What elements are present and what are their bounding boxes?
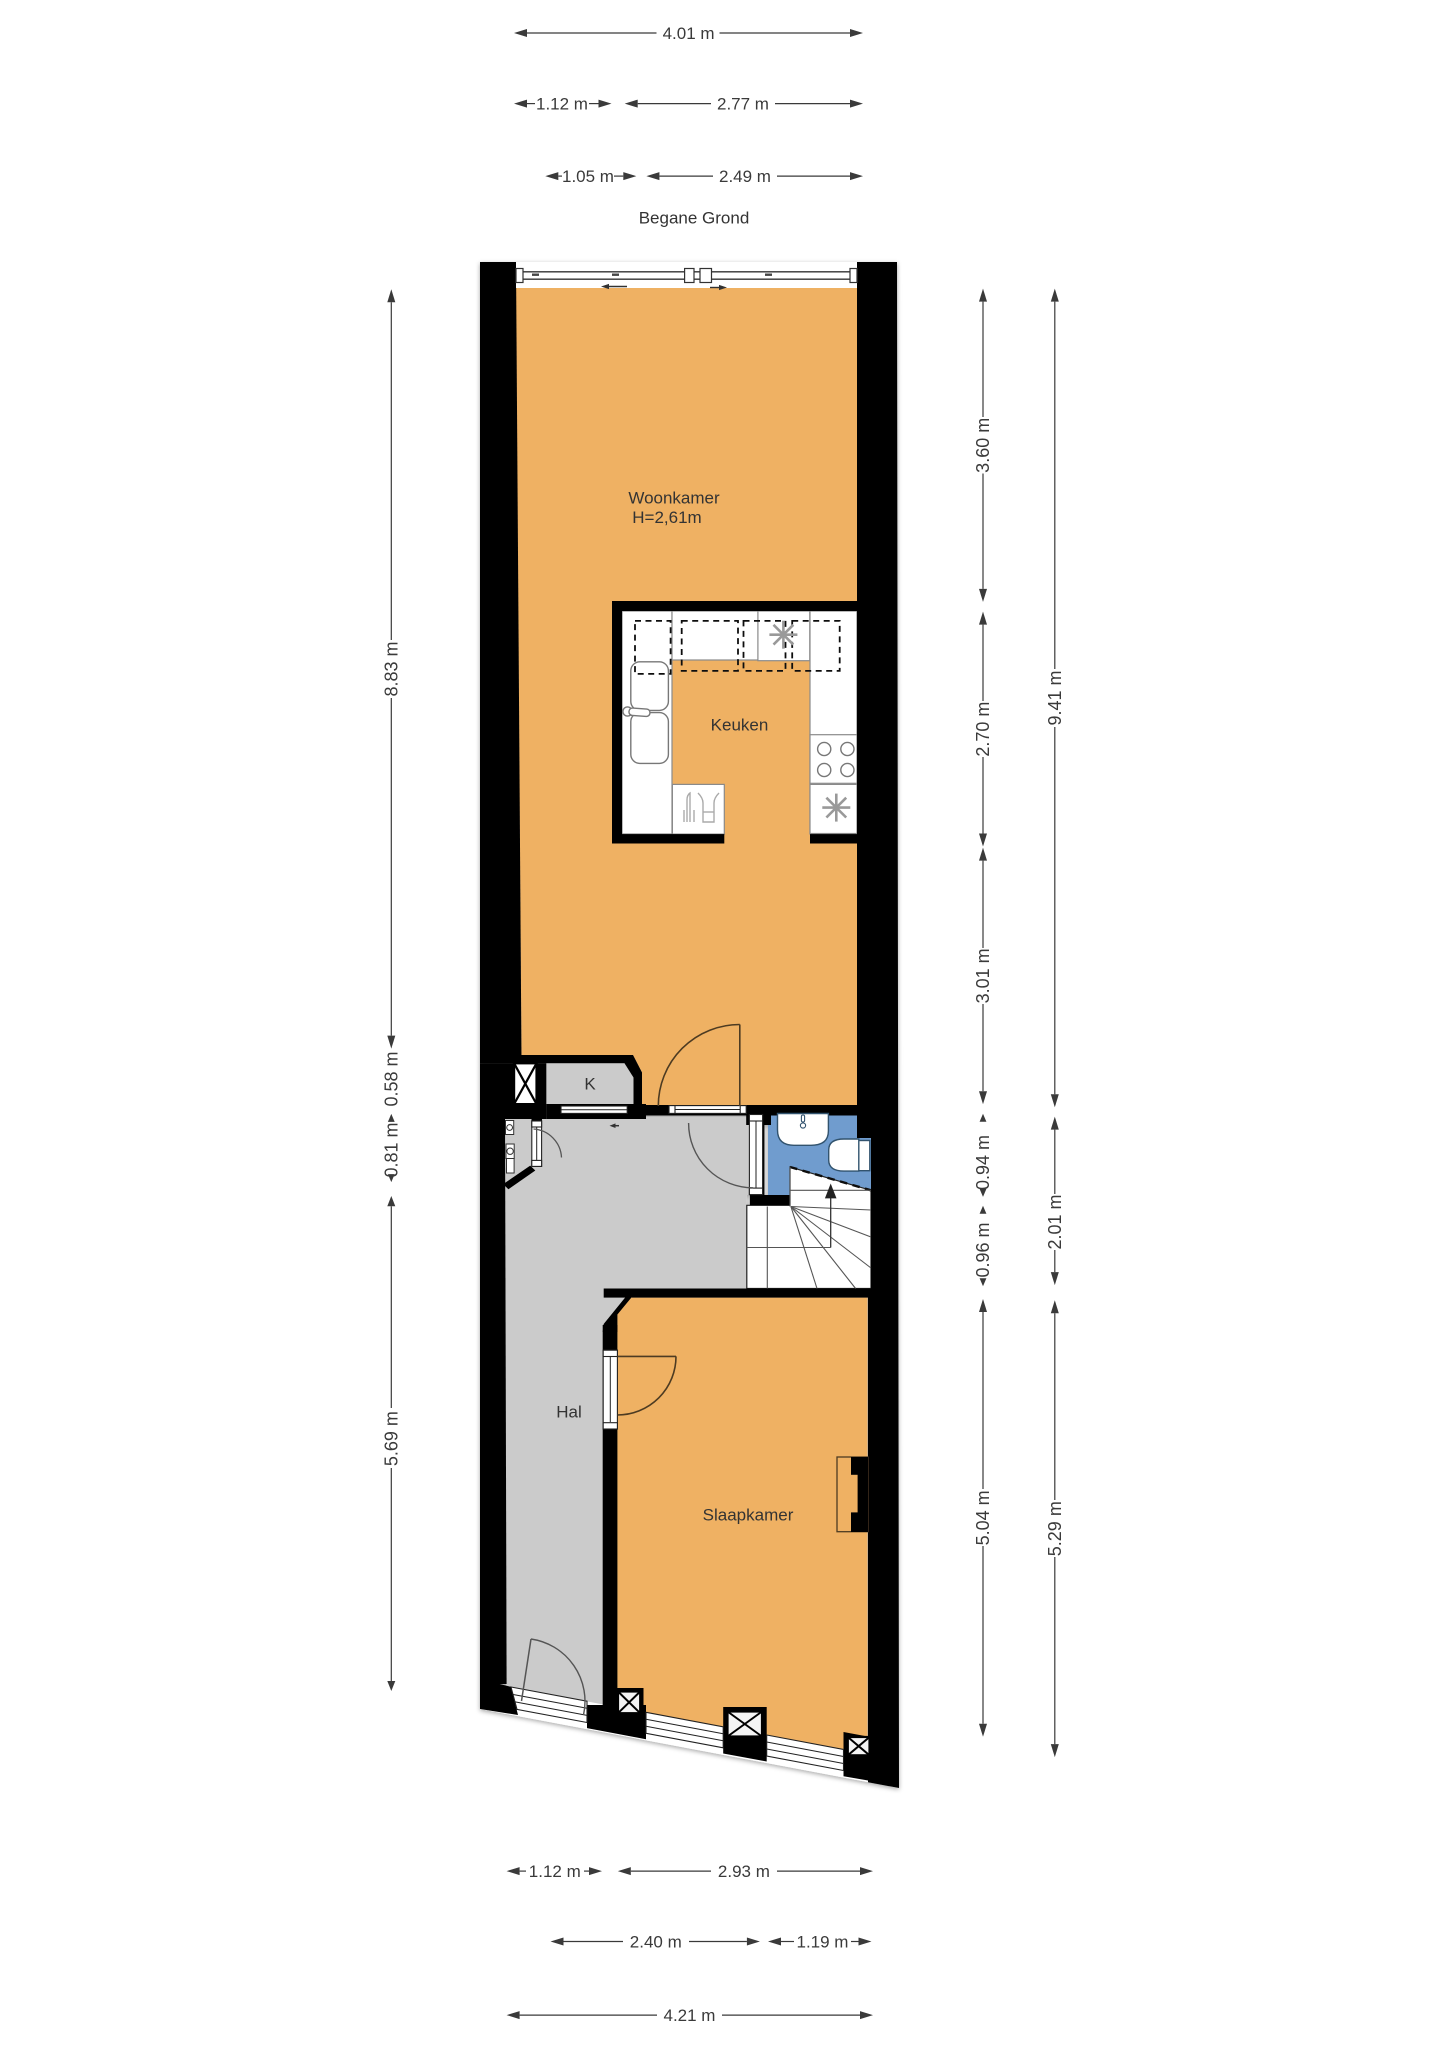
svg-text:Keuken: Keuken <box>711 716 769 735</box>
svg-text:5.29 m: 5.29 m <box>1045 1501 1065 1556</box>
svg-text:1.12 m: 1.12 m <box>529 1862 581 1881</box>
svg-text:2.49 m: 2.49 m <box>719 167 771 186</box>
svg-text:Begane Grond: Begane Grond <box>639 209 750 228</box>
svg-text:0.58 m: 0.58 m <box>381 1051 401 1106</box>
svg-text:4.01 m: 4.01 m <box>663 24 715 43</box>
svg-text:1.05 m: 1.05 m <box>562 167 614 186</box>
svg-text:3.01 m: 3.01 m <box>973 948 993 1003</box>
svg-text:1.12 m: 1.12 m <box>536 95 588 114</box>
svg-text:1.19 m: 1.19 m <box>797 1933 849 1952</box>
svg-text:5.04 m: 5.04 m <box>973 1490 993 1545</box>
svg-text:0.96 m: 0.96 m <box>973 1222 993 1277</box>
svg-text:2.77 m: 2.77 m <box>717 95 769 114</box>
svg-text:2.40 m: 2.40 m <box>630 1933 682 1952</box>
svg-text:Woonkamer: Woonkamer <box>628 489 720 508</box>
svg-text:0.81 m: 0.81 m <box>381 1122 401 1177</box>
svg-text:3.60 m: 3.60 m <box>973 418 993 473</box>
svg-text:Hal: Hal <box>556 1403 582 1422</box>
svg-text:4.21 m: 4.21 m <box>664 2006 716 2025</box>
svg-text:8.83 m: 8.83 m <box>381 641 401 696</box>
svg-text:H=2,61m: H=2,61m <box>632 508 701 527</box>
svg-text:K: K <box>584 1075 596 1094</box>
svg-text:0.94 m: 0.94 m <box>973 1135 993 1190</box>
svg-text:2.70 m: 2.70 m <box>973 702 993 757</box>
svg-text:5.69 m: 5.69 m <box>381 1411 401 1466</box>
svg-text:2.93 m: 2.93 m <box>718 1862 770 1881</box>
svg-text:Slaapkamer: Slaapkamer <box>703 1506 794 1525</box>
svg-text:2.01 m: 2.01 m <box>1045 1194 1065 1249</box>
svg-text:9.41 m: 9.41 m <box>1045 670 1065 725</box>
